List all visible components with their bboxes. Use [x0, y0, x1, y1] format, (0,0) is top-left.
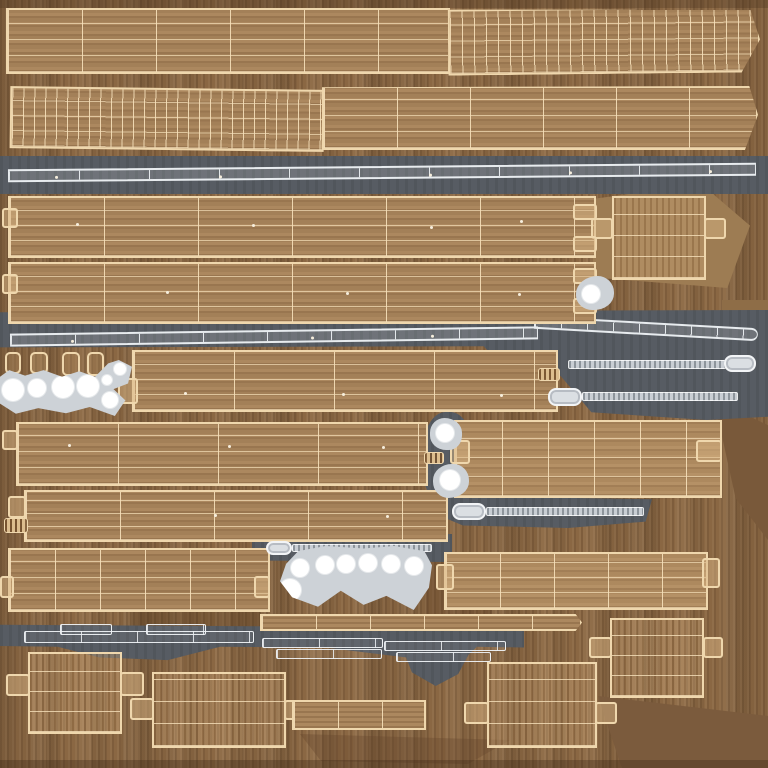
- bolt-hole: [582, 285, 600, 303]
- bolt-hole: [114, 363, 126, 375]
- uv-plank-8-right: [444, 552, 708, 610]
- tab: [0, 576, 14, 598]
- vertex-dot: [166, 291, 169, 294]
- vertex-dot: [382, 446, 385, 449]
- tab: [130, 698, 154, 720]
- vertex-dot: [386, 515, 389, 518]
- washer-square: [30, 352, 48, 374]
- tab: [702, 558, 720, 588]
- uv-texture-atlas-canvas: [0, 0, 768, 768]
- tab: [2, 274, 18, 294]
- tab: [2, 208, 18, 228]
- tab: [595, 702, 617, 724]
- washer-square: [5, 352, 21, 374]
- vertex-dot: [569, 171, 572, 174]
- vertex-dot: [252, 224, 255, 227]
- vertex-dot: [76, 223, 79, 226]
- zip-tie-1-body: [568, 360, 726, 369]
- uv-plank-top-right-curved: [448, 6, 761, 75]
- tab: [464, 702, 489, 724]
- bracket-plate-right: [280, 546, 432, 610]
- bolt-hole: [359, 554, 377, 572]
- box-unwrap-d: [487, 662, 597, 748]
- vertex-dot: [184, 392, 187, 395]
- vertex-dot: [430, 226, 433, 229]
- facet-edge-top: [0, 0, 768, 8]
- bolt-hole: [436, 424, 454, 442]
- facet-shade-right: [714, 400, 768, 540]
- bolt-hole: [102, 375, 112, 385]
- uv-plank-2-left-curved: [10, 86, 325, 152]
- zip-tie-2-head: [548, 388, 582, 406]
- zip-tie-1-head: [724, 355, 756, 372]
- tab: [8, 496, 26, 518]
- bolt-hole: [337, 555, 355, 573]
- tab: [254, 576, 270, 598]
- vertex-dot: [68, 444, 71, 447]
- bolt-hole: [28, 379, 46, 397]
- bolt-hole: [52, 376, 74, 398]
- vertex-dot: [431, 335, 434, 338]
- vertex-dot: [518, 293, 521, 296]
- tab: [436, 564, 454, 590]
- facet-shade-bottom-right: [598, 688, 768, 768]
- tab: [704, 218, 726, 239]
- tab: [573, 236, 597, 252]
- tab: [6, 674, 30, 696]
- threaded-tip: [424, 452, 444, 464]
- facet-edge-bottom: [0, 760, 768, 768]
- box-unwrap-b: [152, 672, 286, 748]
- vertex-dot: [342, 393, 345, 396]
- bolt-hole: [440, 470, 460, 490]
- bracket-teardrop-1: [576, 276, 614, 310]
- bolt-hole: [405, 557, 423, 575]
- vertex-dot: [71, 340, 74, 343]
- vertex-dot: [346, 292, 349, 295]
- threaded-tip: [538, 368, 560, 381]
- bolt-hole: [77, 375, 99, 397]
- uv-plank-2-right: [322, 86, 758, 150]
- vertex-dot: [228, 445, 231, 448]
- flat-strap: [60, 624, 112, 635]
- tab: [573, 204, 597, 220]
- uv-plank-7: [24, 490, 448, 542]
- vertex-dot: [219, 175, 222, 178]
- uv-plank-mid-right: [454, 420, 722, 498]
- box-unwrap-a: [28, 652, 122, 734]
- flat-strap: [262, 638, 383, 648]
- uv-plank-5: [132, 350, 558, 412]
- vertex-dot: [55, 176, 58, 179]
- bracket-teardrop-2: [430, 418, 462, 450]
- tab: [589, 637, 612, 658]
- box-unwrap-e: [610, 618, 704, 698]
- vertex-dot: [214, 514, 217, 517]
- bolt-hole: [2, 379, 24, 401]
- slat-piece-c: [292, 700, 426, 730]
- threaded-tip: [4, 518, 28, 533]
- flat-strap: [384, 641, 506, 651]
- vertex-dot: [709, 170, 712, 173]
- uv-plank-3: [8, 196, 596, 258]
- uv-plank-6: [16, 422, 428, 486]
- uv-plank-8-left: [8, 548, 270, 612]
- zip-tie-4-head: [266, 541, 292, 555]
- zip-tie-3-head: [452, 503, 486, 520]
- bolt-hole: [382, 555, 400, 573]
- uv-plank-4: [8, 262, 596, 324]
- vertex-dot: [520, 220, 523, 223]
- flat-strap: [146, 624, 206, 635]
- bolt-hole: [279, 579, 301, 601]
- thin-slat-strip: [260, 614, 582, 631]
- zip-tie-3-body: [486, 507, 644, 516]
- uv-plank-top-left: [6, 8, 450, 74]
- vertex-dot: [429, 174, 432, 177]
- flat-strap: [396, 652, 491, 662]
- zip-tie-2-body: [582, 392, 738, 401]
- tab: [2, 430, 18, 450]
- flat-strap: [24, 631, 254, 643]
- bolt-hole: [316, 556, 334, 574]
- box-unwrap-top-right: [612, 196, 706, 280]
- bolt-hole: [102, 392, 118, 408]
- bolt-hole: [291, 559, 309, 577]
- flat-strap: [276, 649, 382, 659]
- tab: [703, 637, 723, 658]
- tab: [696, 440, 722, 462]
- vertex-dot: [311, 336, 314, 339]
- tab: [120, 672, 144, 696]
- vertex-dot: [500, 394, 503, 397]
